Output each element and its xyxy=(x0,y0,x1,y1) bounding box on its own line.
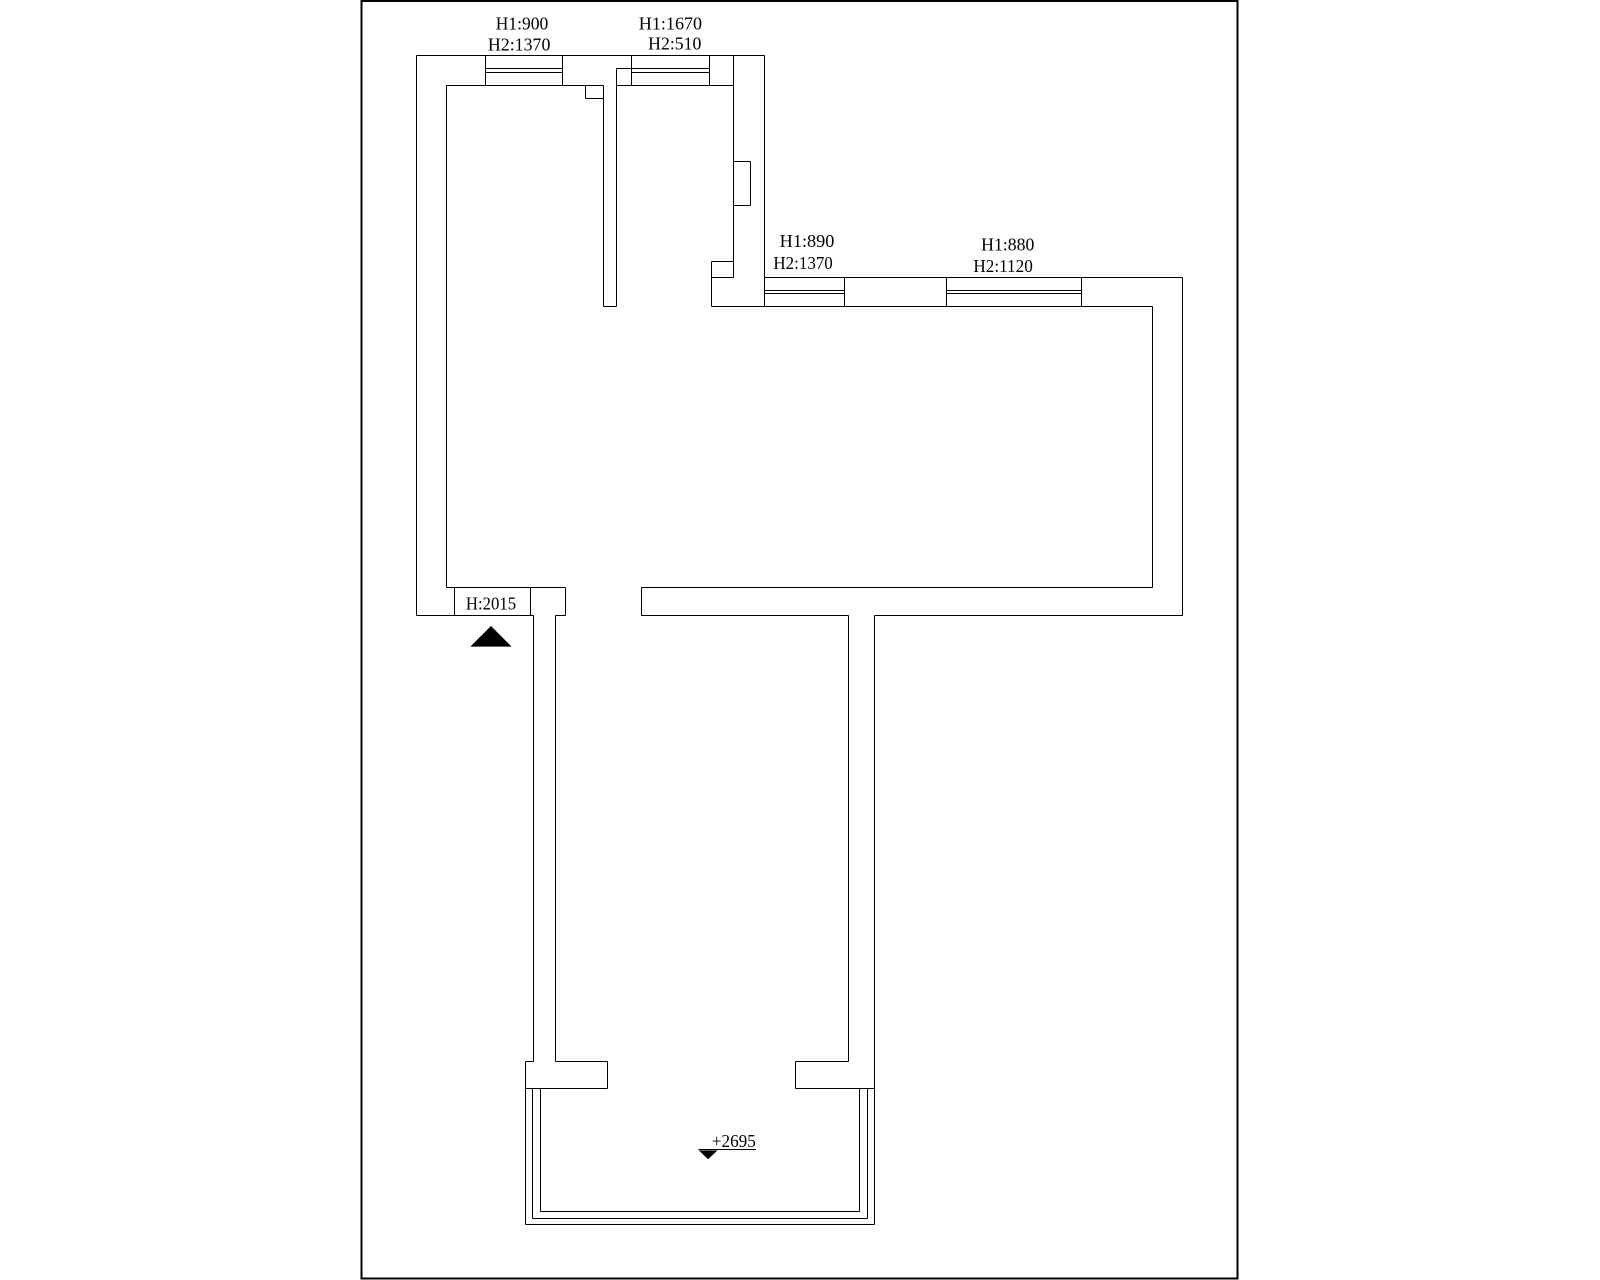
svg-text:H1:1670: H1:1670 xyxy=(639,14,703,34)
svg-text:H1:890: H1:890 xyxy=(780,231,835,251)
svg-text:H1:900: H1:900 xyxy=(496,14,549,34)
svg-text:H1:880: H1:880 xyxy=(981,234,1034,254)
svg-text:H2:1120: H2:1120 xyxy=(973,256,1033,276)
svg-text:H2:510: H2:510 xyxy=(648,34,701,54)
svg-text:H:2015: H:2015 xyxy=(466,593,516,613)
svg-text:+2695: +2695 xyxy=(712,1131,756,1151)
svg-text:H2:1370: H2:1370 xyxy=(773,253,833,273)
svg-text:H2:1370: H2:1370 xyxy=(488,34,551,54)
